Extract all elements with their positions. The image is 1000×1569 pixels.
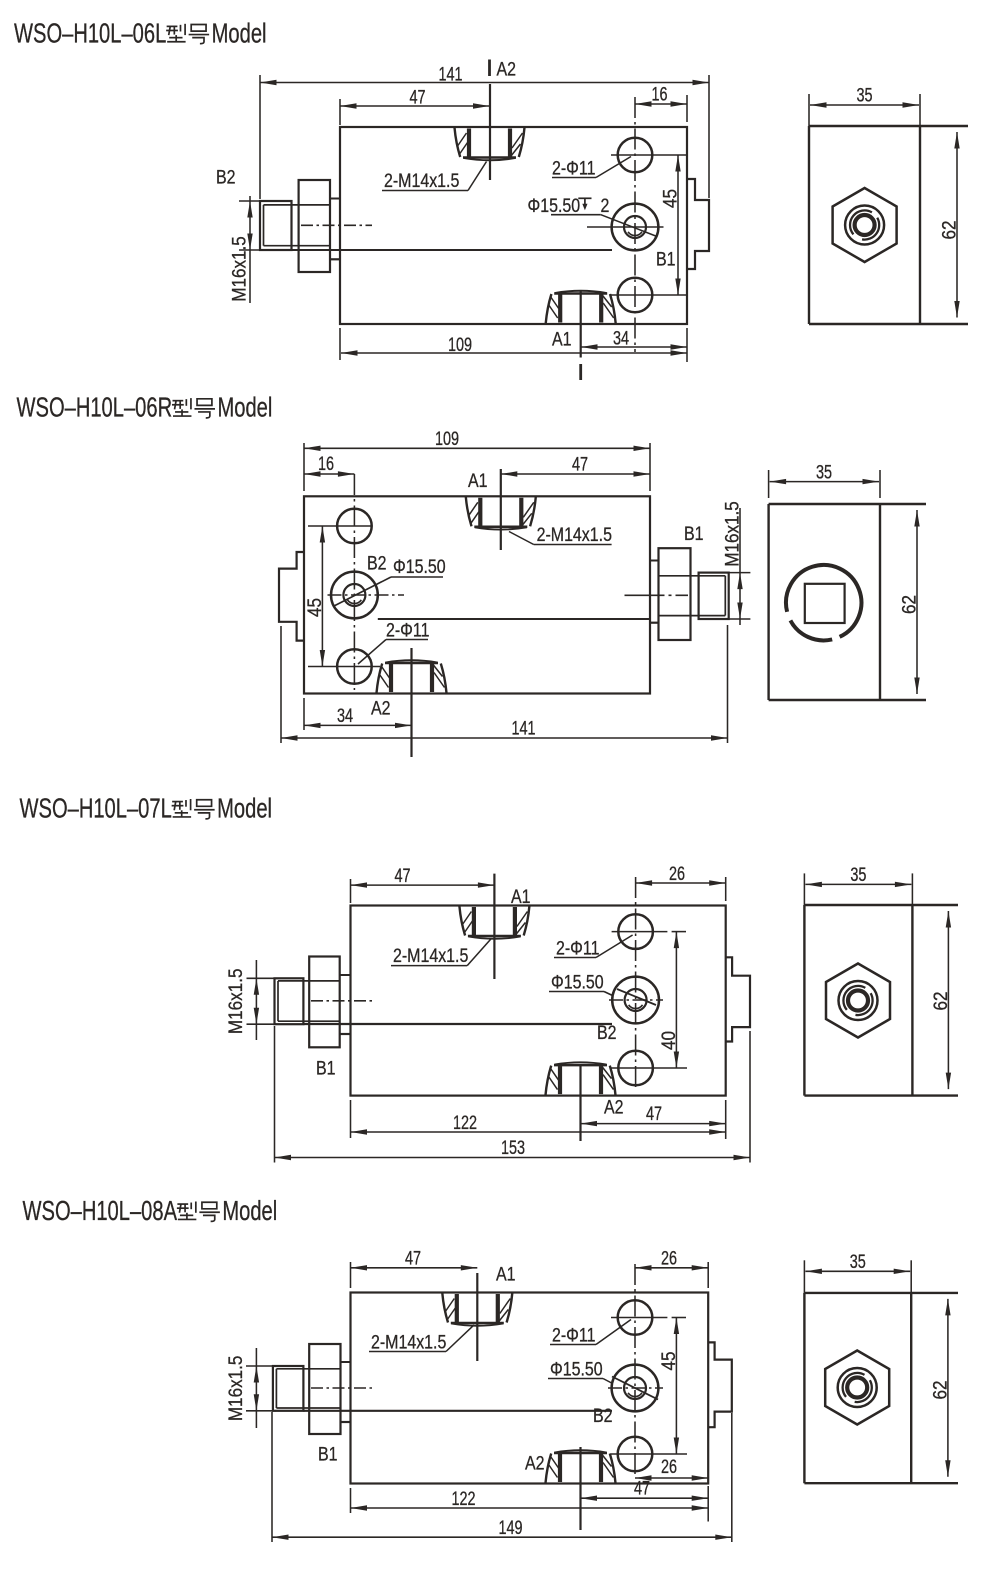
svg-text:16: 16	[651, 84, 667, 105]
svg-text:2-Φ11: 2-Φ11	[386, 619, 429, 641]
svg-text:M16x1.5: M16x1.5	[722, 501, 743, 567]
svg-text:Model: Model	[212, 18, 267, 49]
svg-text:B2: B2	[593, 1405, 613, 1427]
svg-text:B1: B1	[684, 523, 704, 545]
svg-text:2-Φ11: 2-Φ11	[552, 1324, 595, 1346]
svg-text:47: 47	[572, 454, 588, 475]
svg-text:M16x1.5: M16x1.5	[225, 969, 246, 1035]
svg-text:A2: A2	[525, 1452, 545, 1474]
svg-text:45: 45	[304, 598, 325, 617]
svg-text:45: 45	[660, 189, 681, 208]
svg-text:B1: B1	[318, 1443, 338, 1465]
svg-text:16: 16	[318, 453, 334, 474]
svg-text:Model: Model	[217, 392, 272, 423]
svg-text:A1: A1	[511, 886, 531, 908]
svg-text:2: 2	[601, 195, 610, 217]
svg-text:26: 26	[669, 863, 685, 884]
svg-text:47: 47	[409, 87, 425, 108]
svg-text:Φ15.50: Φ15.50	[551, 971, 604, 993]
svg-text:149: 149	[498, 1517, 522, 1538]
svg-text:B2: B2	[367, 552, 387, 574]
svg-text:141: 141	[438, 64, 462, 85]
svg-text:122: 122	[453, 1112, 477, 1133]
svg-text:Φ15.50: Φ15.50	[393, 556, 446, 578]
svg-text:47: 47	[394, 865, 410, 886]
svg-text:62: 62	[930, 1380, 951, 1399]
svg-text:M16x1.5: M16x1.5	[225, 1356, 246, 1422]
svg-text:2-M14x1.5: 2-M14x1.5	[371, 1331, 447, 1353]
svg-text:153: 153	[501, 1137, 525, 1158]
svg-text:141: 141	[511, 718, 535, 739]
svg-text:26: 26	[661, 1456, 677, 1477]
svg-text:M16x1.5: M16x1.5	[229, 236, 250, 302]
svg-text:34: 34	[337, 705, 353, 726]
svg-text:A2: A2	[371, 697, 391, 719]
svg-text:2-M14x1.5: 2-M14x1.5	[384, 170, 460, 192]
svg-text:B1: B1	[316, 1057, 336, 1079]
svg-text:47: 47	[405, 1248, 421, 1269]
svg-text:109: 109	[435, 428, 459, 449]
svg-text:A2: A2	[604, 1096, 624, 1118]
svg-text:35: 35	[856, 85, 872, 106]
svg-text:47: 47	[646, 1103, 662, 1124]
svg-text:Φ15.50: Φ15.50	[550, 1358, 603, 1380]
svg-text:47: 47	[634, 1478, 650, 1499]
svg-text:2-Φ11: 2-Φ11	[556, 937, 599, 959]
svg-text:A2: A2	[497, 58, 517, 80]
svg-text:A1: A1	[496, 1263, 516, 1285]
svg-text:40: 40	[658, 1031, 679, 1050]
svg-text:35: 35	[850, 864, 866, 885]
svg-text:62: 62	[899, 595, 920, 614]
svg-text:122: 122	[451, 1488, 475, 1509]
svg-text:35: 35	[816, 462, 832, 483]
svg-text:Model: Model	[222, 1196, 277, 1227]
svg-text:62: 62	[930, 991, 951, 1010]
svg-text:2-M14x1.5: 2-M14x1.5	[393, 945, 469, 967]
svg-text:34: 34	[613, 328, 629, 349]
svg-text:WSO–H10L–06L: WSO–H10L–06L	[14, 18, 166, 49]
svg-text:2-Φ11: 2-Φ11	[552, 157, 595, 179]
svg-text:B1: B1	[656, 248, 676, 270]
svg-text:62: 62	[939, 220, 960, 239]
svg-text:2-M14x1.5: 2-M14x1.5	[537, 524, 613, 546]
svg-text:A1: A1	[552, 328, 572, 350]
svg-text:Model: Model	[217, 793, 272, 824]
svg-text:WSO–H10L–06R: WSO–H10L–06R	[17, 392, 173, 423]
svg-text:B2: B2	[216, 166, 236, 188]
svg-text:WSO–H10L–08A: WSO–H10L–08A	[23, 1196, 178, 1227]
svg-text:26: 26	[661, 1248, 677, 1269]
svg-text:Φ15.50: Φ15.50	[528, 195, 581, 217]
svg-text:109: 109	[448, 334, 472, 355]
svg-text:WSO–H10L–07L: WSO–H10L–07L	[20, 793, 172, 824]
svg-text:B2: B2	[597, 1022, 617, 1044]
svg-text:45: 45	[658, 1351, 679, 1370]
svg-text:35: 35	[850, 1251, 866, 1272]
svg-text:A1: A1	[468, 470, 488, 492]
